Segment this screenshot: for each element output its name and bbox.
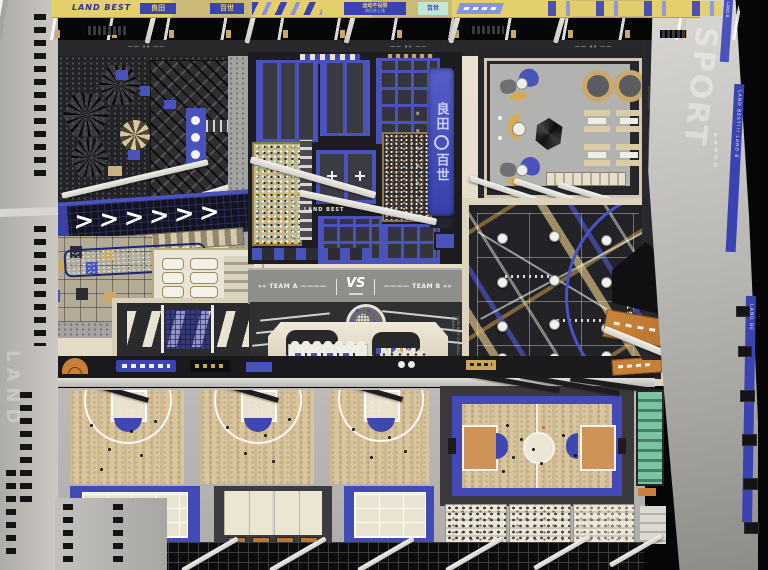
cafe-floor [490,64,630,186]
player-dot [352,428,355,431]
player-dot [404,450,407,453]
play-pad [116,70,128,80]
player-dot [506,424,509,427]
mezzanine-walkway [55,356,655,378]
player-dot [90,424,93,427]
net-line [272,491,274,535]
tower-porthole [191,150,200,159]
play-pad [164,100,176,109]
divider-tick [374,279,375,295]
ceiling-vent [470,26,504,34]
player-dot [562,434,565,437]
banner-cn-top: 良田 [432,102,451,132]
sign-dashes [122,364,170,368]
sports-park-render: —— »» —— —— »» —— —— »» —— >>>>>> [0,0,768,570]
player-dot [540,462,543,465]
basketball-floor-graphic [62,358,88,374]
player-dot [288,418,291,421]
floor-sign [466,360,496,370]
obstacle-dots [505,275,549,278]
slash-dashes [463,7,496,10]
banner-slash-box [456,3,504,14]
wall-window [736,306,750,317]
emblem-dot [356,309,359,312]
icon-blob [398,361,405,368]
floor-sign [246,362,272,372]
banner-sign-baishi-small: 百世 [418,2,448,15]
bench [584,144,610,150]
trampoline-row [256,60,318,142]
banner-arrow-pattern [522,1,722,16]
round-table [512,122,526,136]
course-post [549,319,560,330]
volleyball-floor [224,491,322,535]
floor-sign [190,360,230,372]
sign-dashes [195,364,225,368]
key-arc-left [496,433,508,459]
course-post [549,231,560,242]
cafe-lounge [478,50,642,200]
player-dot [370,456,373,459]
course-post [497,277,508,288]
bench [616,126,642,132]
half-court [200,390,314,484]
floor-dash-mark: —— »» —— [390,44,427,50]
tray [162,272,184,284]
tray [190,272,218,284]
window-slats [6,470,16,556]
half-court [330,390,430,484]
landing-pad [434,232,456,250]
course-post [549,275,560,286]
wall-window [743,478,758,490]
booth-table [620,118,638,124]
bench [584,110,610,116]
track-frame-post [211,305,214,353]
court-floor [462,404,612,488]
window-slats [34,226,46,346]
safety-net [165,309,209,349]
cross-mark [359,171,361,181]
wall-ledge [0,207,58,217]
hoop [618,438,626,454]
icon-blob [408,361,415,368]
player-dot [502,470,505,473]
wall-window [742,434,757,446]
player-dot [130,430,133,433]
tray [190,258,218,270]
booth-seat [616,108,642,134]
banner-logo-icon [434,135,449,150]
sign-dashes [618,363,654,369]
circuit-line [260,312,330,321]
wall-window [738,346,752,357]
window-slats [63,504,73,564]
ghost-wall-text: LAND [2,350,23,480]
player-dot [388,436,391,439]
sofa-cluster [494,112,538,146]
booth-seat [584,142,610,168]
team-a-label: «« TEAM A ———— [258,283,326,290]
vs-label: VS [346,276,365,291]
banner-slogan-box: 运动不设限 快乐先上场 [344,2,406,15]
floor-dash-mark: —— »» —— [128,44,165,50]
round-table [515,164,528,177]
pad-bar [252,248,372,260]
bench [616,110,642,116]
half-court [70,390,184,484]
booth-table [588,152,606,158]
player-dot [512,456,515,459]
table-scallop-awning [289,341,367,349]
player-dot [226,426,229,429]
player-dot [100,468,103,471]
booth-seat [616,142,642,168]
mat-shelf [636,390,664,486]
ceiling-vent [86,26,126,35]
key-right [580,425,616,471]
banner-sign-liangtian: 良田 [140,3,176,14]
badminton-court [344,486,434,544]
round-table [515,77,529,91]
player-dot [140,454,143,457]
center-circle [523,432,555,464]
booth-table [588,118,606,124]
kids-adventure-zone [58,56,248,204]
spiral-slide [120,120,150,150]
stage-side-text: LAND BEST CULTURAL TOURISM [450,316,460,356]
slogan-sub: 快乐先上场 [365,9,385,13]
play-pad [140,86,150,96]
banner-sign-baishi: 百世 [210,3,244,14]
banner-cn-bottom: 百世 [432,153,451,183]
key-left [462,425,498,471]
player-dot [264,434,267,437]
booth-table [620,152,638,158]
window-slats [113,504,123,564]
trampoline-park: LAND BEST « « « « « « 良田 百世 [248,52,462,264]
wall-window [744,522,759,534]
player-dot [272,460,275,463]
player-dot [244,452,247,455]
bench [584,160,610,166]
hoop [448,438,456,454]
badminton-lines [354,492,426,538]
floor-icon [396,358,418,372]
player-dot [532,448,535,451]
banner-zigzag-pattern [252,2,322,15]
play-pad [128,150,140,160]
lower-left-wall [55,498,167,570]
volleyball-court [214,486,332,544]
player-dot [108,448,111,451]
track-frame-post [161,305,164,353]
sofa-grey [499,162,516,178]
stripe-text: LAND BEST!!! LAND B [733,90,742,159]
course-post [497,233,508,244]
tray [162,286,184,298]
emblem-dot [367,309,370,312]
full-court-zone [440,386,634,506]
player-dot [574,454,577,457]
course-post [497,321,508,332]
tray [190,286,218,298]
trampoline-row [320,60,370,136]
sign-dashes [470,363,492,366]
sculpture-structure [534,118,564,150]
ceiling-vent [660,30,686,38]
trampoline-grid [382,224,440,264]
play-pad [108,166,122,176]
parasol-table [582,70,614,102]
wall-chevrons: »»»»» [710,132,720,206]
side-plate [498,116,502,120]
tray [162,258,184,270]
banner-brand-text: LAND BEST [72,3,131,12]
bench [616,144,642,150]
sofa-cluster [496,65,544,105]
cubby-cell [76,288,88,300]
booth-seat [584,108,610,134]
equipment-box [638,488,656,496]
ball-dot [542,426,545,429]
side-plate [498,136,502,140]
bench [616,160,642,166]
player-dot [520,438,523,441]
wall-window [740,390,755,402]
brand-banner-vertical: 良田 百世 [428,68,454,216]
player-dot [154,420,157,423]
divider-tick [336,279,337,295]
bench [584,126,610,132]
floor-sign [116,360,176,372]
tower-porthole [191,116,200,125]
vs-underline [349,293,363,295]
bleacher-section [509,504,571,546]
left-wall: LAND [0,0,58,570]
crowd [510,505,570,545]
team-vs-strip: «« TEAM A ———— VS ———— TEAM B »» [248,268,462,304]
circuit-line [382,310,457,320]
team-b-label: ———— TEAM B »» [384,283,452,290]
tower-porthole [191,133,200,142]
climb-tower [186,108,206,166]
up-chevrons: « « « « « « [413,73,425,203]
hanging-banner: LAND BEST 良田 百世 运动不设限 快乐先上场 百世 [52,0,700,18]
floor-brand-text: LAND BEST [304,207,344,213]
